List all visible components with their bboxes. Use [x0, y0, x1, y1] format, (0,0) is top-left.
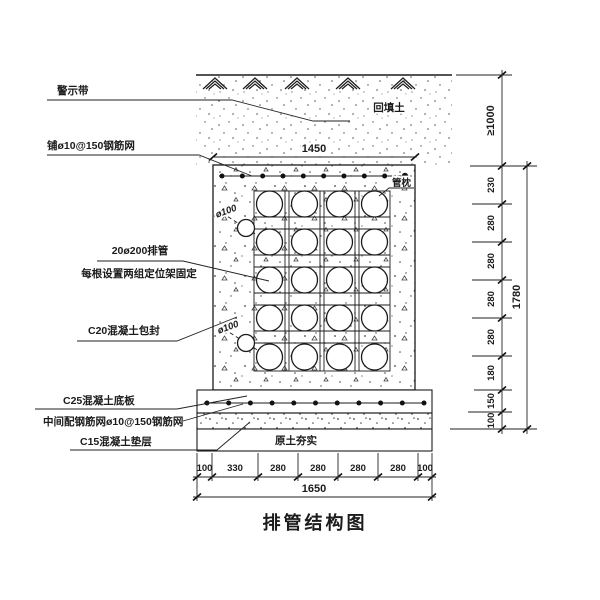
fill-soil-label: 回填土 [373, 101, 405, 114]
rebar-dot [400, 401, 405, 406]
pipe-circle [327, 229, 353, 255]
rebar-dot [226, 401, 231, 406]
right-dim-label: 230 [486, 177, 497, 193]
pipe-circle [292, 344, 318, 370]
rebar-dot [335, 401, 340, 406]
pipe-circle [292, 305, 318, 331]
bottom-dim-label: 280 [310, 463, 326, 474]
rebar-dot [291, 401, 296, 406]
rebar-dot [378, 401, 383, 406]
bottom-dim-label: 330 [227, 463, 243, 474]
dim-top-width-label: 1450 [302, 143, 326, 155]
pipe-pillow-label: 管枕 [392, 177, 412, 189]
drain-pipe-top-circle [238, 220, 255, 237]
pipe-circle [327, 267, 353, 293]
right-dim-label: 280 [486, 215, 497, 231]
pipe-circle [257, 267, 283, 293]
pipe-circle [362, 305, 388, 331]
pipe-circle [257, 344, 283, 370]
rebar-dot [382, 174, 387, 179]
compacted-soil-label: 原土夯实 [275, 434, 317, 447]
right-dim-label: 150 [486, 393, 497, 409]
bottom-dimension-chain: 1003302802802802801001650 [193, 453, 436, 501]
cushion-label: C15混凝土垫层 [80, 435, 152, 448]
bottom-dim-label: 280 [390, 463, 406, 474]
pipe-circle [327, 191, 353, 217]
rebar-dot [240, 174, 245, 179]
rebar-dot [321, 174, 326, 179]
pipe-circle [257, 305, 283, 331]
rebar-dot [341, 174, 346, 179]
right-dim-label: 280 [486, 329, 497, 345]
bottom-dim-label: 280 [350, 463, 366, 474]
warning-tape-label: 警示带 [56, 84, 89, 97]
pipe-circle [257, 229, 283, 255]
bottom-dim-label: 280 [270, 463, 286, 474]
rebar-dot [356, 401, 361, 406]
rebar-dot [301, 174, 306, 179]
right-dim-total-label: 1780 [511, 285, 523, 309]
rebar-dot [248, 401, 253, 406]
pipe-circle [362, 267, 388, 293]
right-dim-label: 280 [486, 253, 497, 269]
right-dim-label: 280 [486, 291, 497, 307]
pipe-circle [362, 229, 388, 255]
pipe-circle [327, 305, 353, 331]
pipe-circle [257, 191, 283, 217]
pipe-circle [292, 267, 318, 293]
pipe-circle [292, 229, 318, 255]
right-dimension-chain: ≥10002302802802802801801501001780 [450, 70, 537, 434]
base-slab-label: C25混凝土底板 [63, 394, 135, 407]
pipe-circle [362, 344, 388, 370]
slab-mesh-label: 中间配钢筋网ø10@150钢筋网 [43, 415, 183, 428]
bottom-dim-label: 100 [197, 463, 213, 474]
pipe-circle [292, 191, 318, 217]
rebar-dot [220, 174, 225, 179]
top-mesh-label: 铺ø10@150钢筋网 [47, 139, 135, 152]
bottom-dim-total-label: 1650 [302, 483, 326, 495]
pipe-structure-drawing: 回填土 1450 管枕 ø100 ø100 [0, 0, 600, 600]
drain-pipe-bottom-circle [238, 335, 255, 352]
pipe-circle [362, 191, 388, 217]
right-dim-label: ≥1000 [485, 105, 497, 136]
drawing-page: 回填土 1450 管枕 ø100 ø100 [0, 0, 600, 600]
rebar-dot [270, 401, 275, 406]
drawing-title: 排管结构图 [263, 512, 368, 533]
rebar-dot [362, 174, 367, 179]
right-dim-label: 180 [486, 365, 497, 381]
rebar-dot [280, 174, 285, 179]
encasement-label: C20混凝土包封 [88, 324, 160, 337]
bottom-dim-label: 100 [417, 463, 433, 474]
pipes-label: 20ø200排管 [112, 244, 169, 257]
cushion-layer [197, 413, 432, 429]
rebar-dot [422, 401, 427, 406]
rebar-dot [313, 401, 318, 406]
rebar-dot [260, 174, 265, 179]
pipe-circle [327, 344, 353, 370]
pipe-fixing-label: 每根设置两组定位架固定 [81, 267, 197, 280]
right-dim-label: 100 [486, 413, 497, 429]
